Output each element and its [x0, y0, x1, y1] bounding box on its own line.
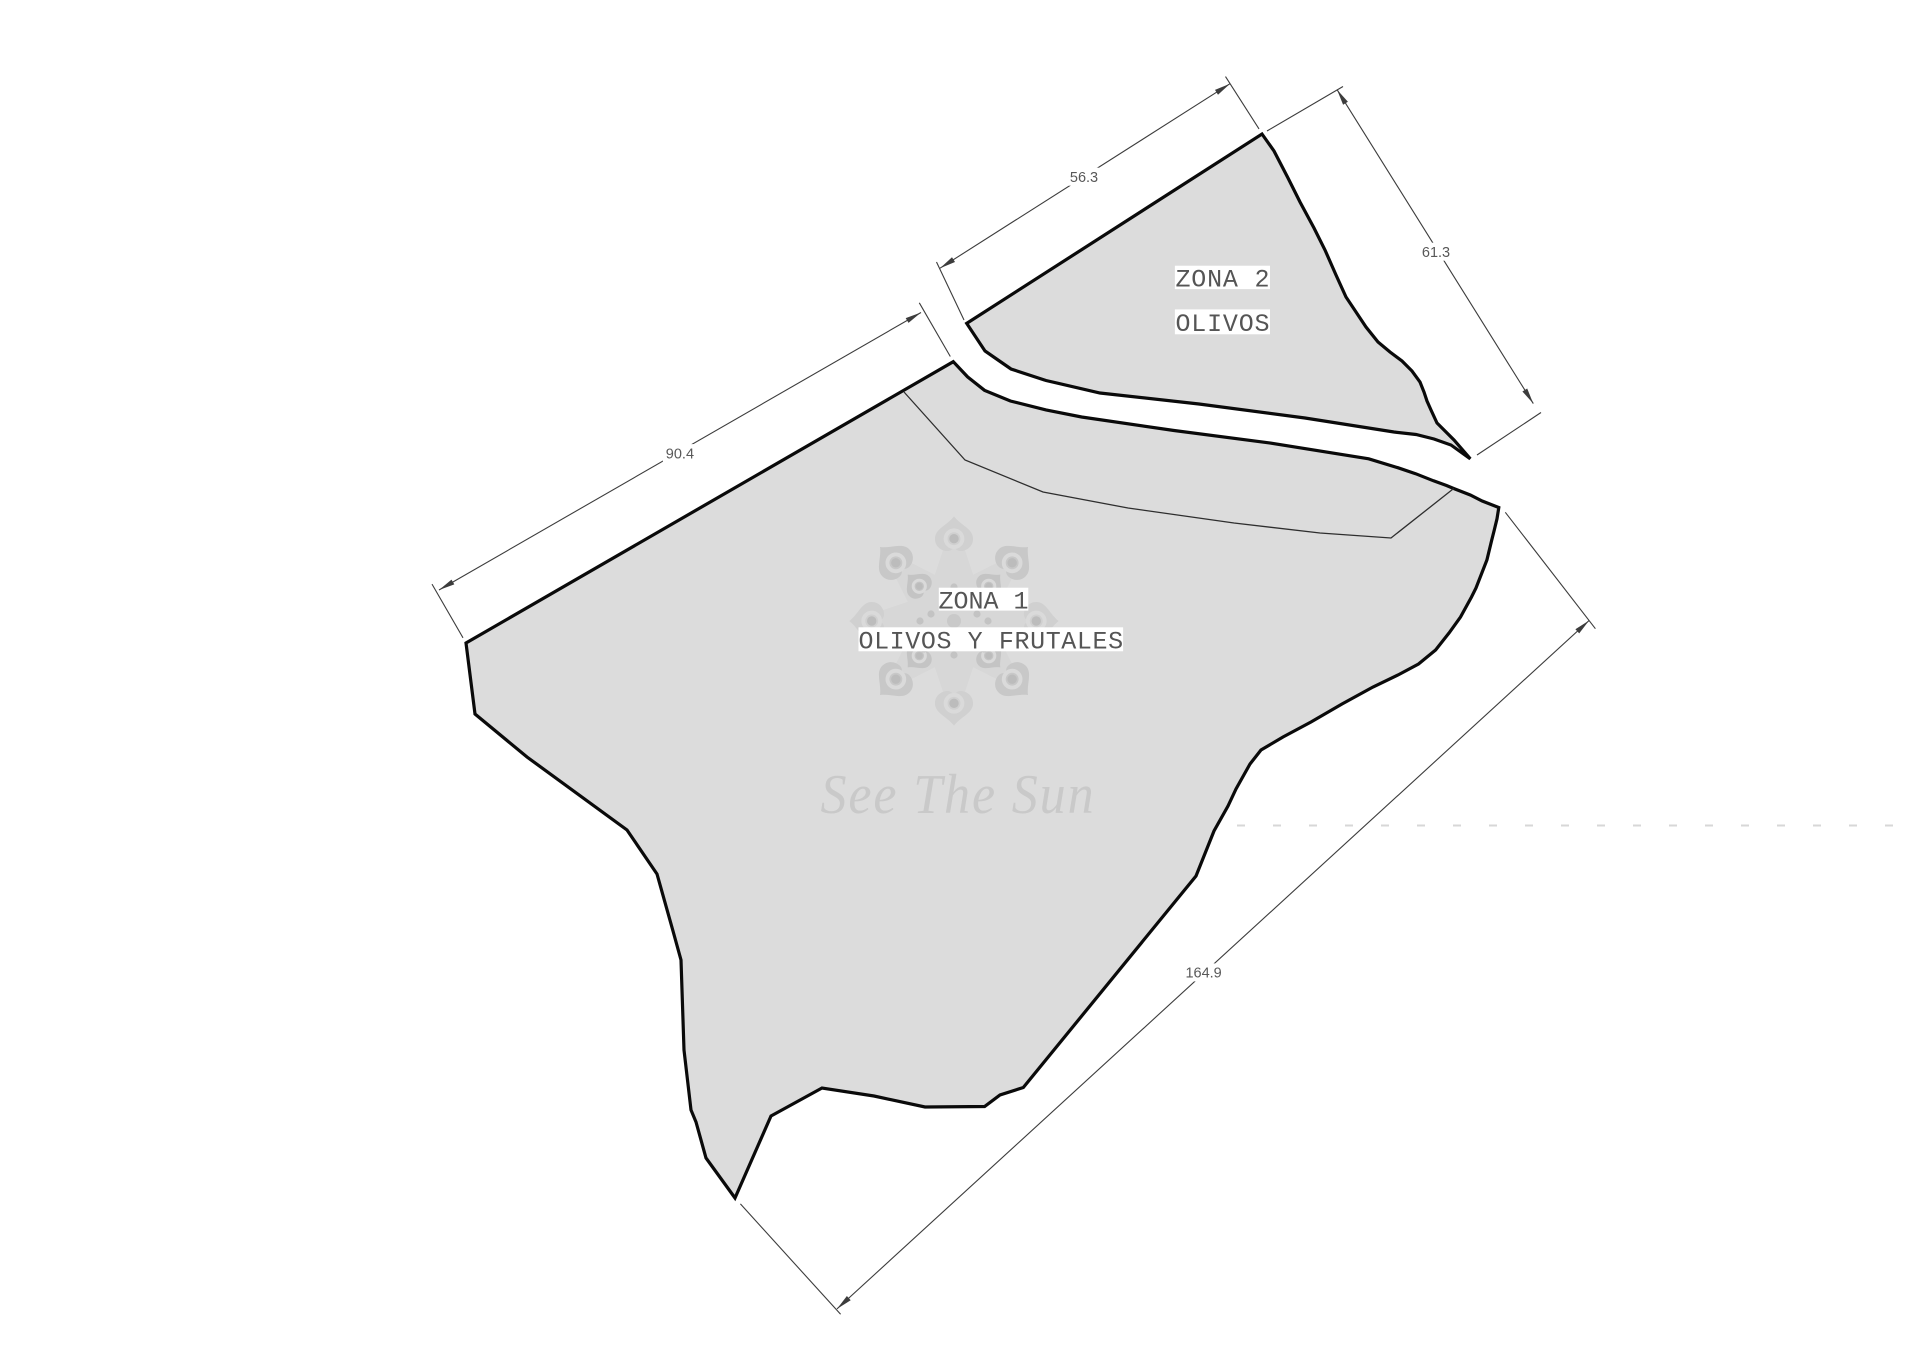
svg-text:OLIVOS: OLIVOS — [1175, 310, 1270, 339]
svg-text:90.4: 90.4 — [666, 446, 694, 462]
svg-text:164.9: 164.9 — [1185, 966, 1221, 982]
svg-text:ZONA 2: ZONA 2 — [1175, 266, 1270, 295]
svg-text:See The Sun: See The Sun — [821, 763, 1096, 825]
svg-text:61.3: 61.3 — [1422, 245, 1450, 261]
svg-text:OLIVOS Y FRUTALES: OLIVOS Y FRUTALES — [858, 627, 1123, 656]
svg-text:ZONA 1: ZONA 1 — [938, 587, 1028, 616]
svg-text:56.3: 56.3 — [1070, 170, 1098, 186]
